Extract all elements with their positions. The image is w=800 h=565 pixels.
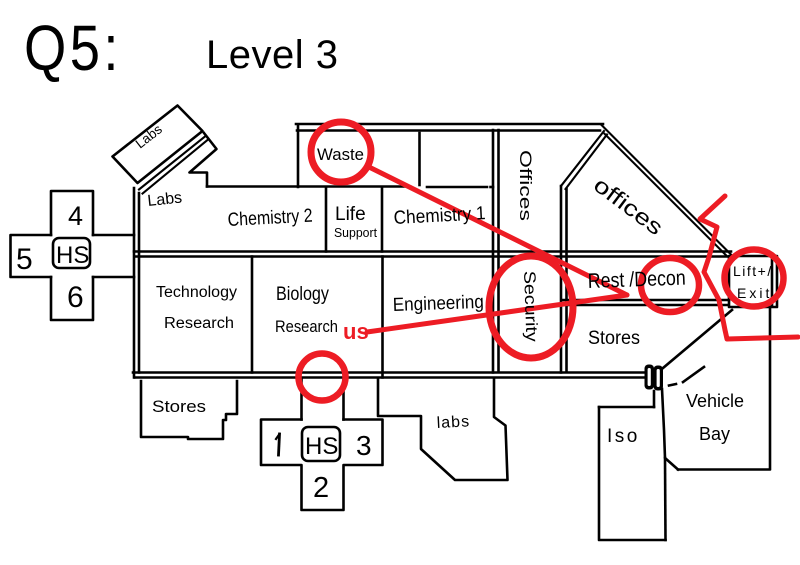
svg-text:Offices: Offices (516, 150, 535, 221)
svg-text:Q5:: Q5: (24, 12, 122, 84)
svg-text:3: 3 (356, 430, 372, 461)
svg-text:labs: labs (436, 413, 470, 432)
svg-text:Level 3: Level 3 (206, 33, 338, 77)
svg-text:Stores: Stores (588, 328, 640, 349)
svg-text:2: 2 (313, 472, 329, 504)
svg-text:Exit: Exit (737, 285, 772, 301)
svg-text:5: 5 (16, 243, 33, 276)
svg-text:4: 4 (68, 201, 83, 231)
svg-text:Vehicle: Vehicle (686, 391, 744, 411)
svg-text:Research: Research (164, 315, 234, 332)
svg-text:Iso: Iso (607, 426, 640, 447)
svg-text:6: 6 (67, 281, 84, 314)
svg-text:HS: HS (56, 242, 89, 269)
svg-text:HS: HS (305, 433, 338, 460)
svg-text:Support: Support (334, 225, 377, 240)
svg-text:Security: Security (520, 271, 540, 343)
svg-text:Engineering: Engineering (392, 292, 484, 316)
svg-text:Research: Research (275, 317, 338, 336)
svg-text:Biology: Biology (276, 284, 329, 305)
svg-text:Bay: Bay (699, 424, 730, 444)
svg-text:Lift+/: Lift+/ (733, 263, 773, 279)
svg-text:Chemistry 2: Chemistry 2 (227, 206, 313, 231)
svg-text:Rest /Decon: Rest /Decon (587, 267, 686, 293)
svg-text:Life: Life (335, 204, 366, 225)
svg-text:Stores: Stores (152, 397, 206, 416)
svg-text:Labs: Labs (147, 189, 183, 210)
svg-text:us: us (343, 319, 369, 344)
svg-text:Technology: Technology (156, 284, 237, 301)
svg-text:Waste: Waste (317, 145, 364, 164)
